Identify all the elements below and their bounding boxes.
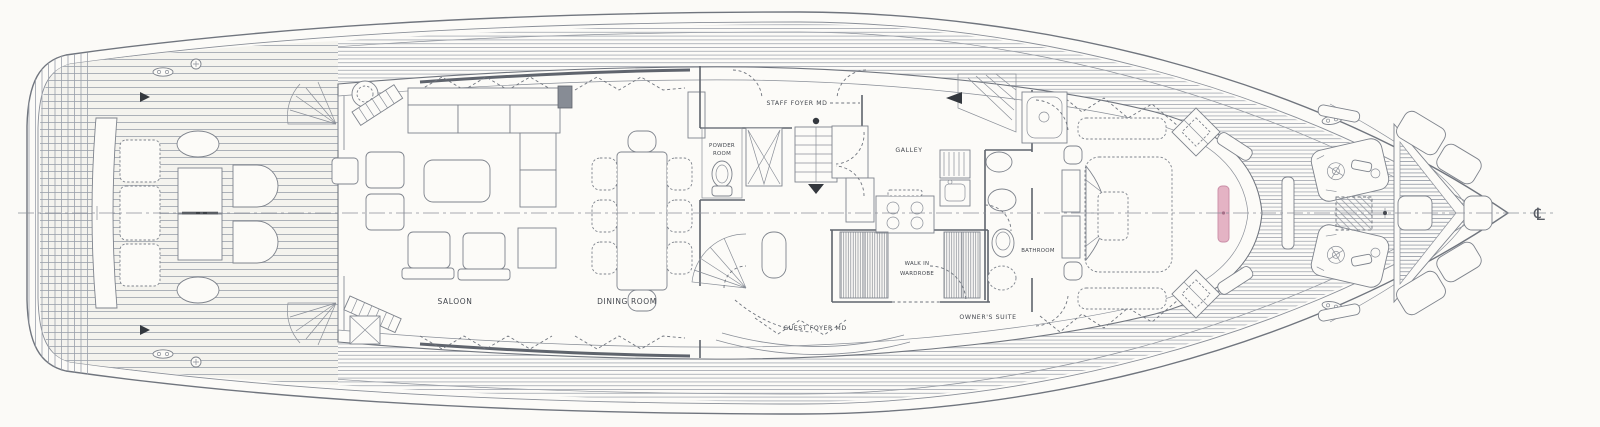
owners-suite-tv (1218, 186, 1229, 242)
dining-room-label: DINING ROOM (597, 297, 657, 306)
staff-foyer-label: STAFF FOYER MD (766, 100, 827, 107)
wardrobe-label-line1: WALK IN (905, 261, 930, 267)
centerline-symbol: ℄ (1533, 205, 1546, 225)
powder-room-label-line1: POWDER (709, 143, 735, 149)
deck-plan-drawing: SALOON DINING ROOM POWDER ROOM (0, 0, 1600, 427)
powder-room-label-line2: ROOM (713, 151, 731, 157)
dumbwaiter (746, 128, 782, 186)
yacht-deck-plan: SALOON DINING ROOM POWDER ROOM (0, 0, 1600, 427)
aft-deck-tables (178, 168, 222, 260)
swim-platform-planking (27, 52, 92, 375)
guest-foyer-label: GUEST FOYER MD (783, 325, 846, 332)
owners-suite-label: OWNER'S SUITE (959, 314, 1016, 321)
shower (1022, 92, 1067, 143)
wardrobe-label-line2: WARDROBE (900, 271, 934, 277)
bathroom-label: BATHROOM (1021, 248, 1055, 254)
galley-label: GALLEY (895, 147, 922, 154)
saloon-label: SALOON (438, 297, 473, 306)
